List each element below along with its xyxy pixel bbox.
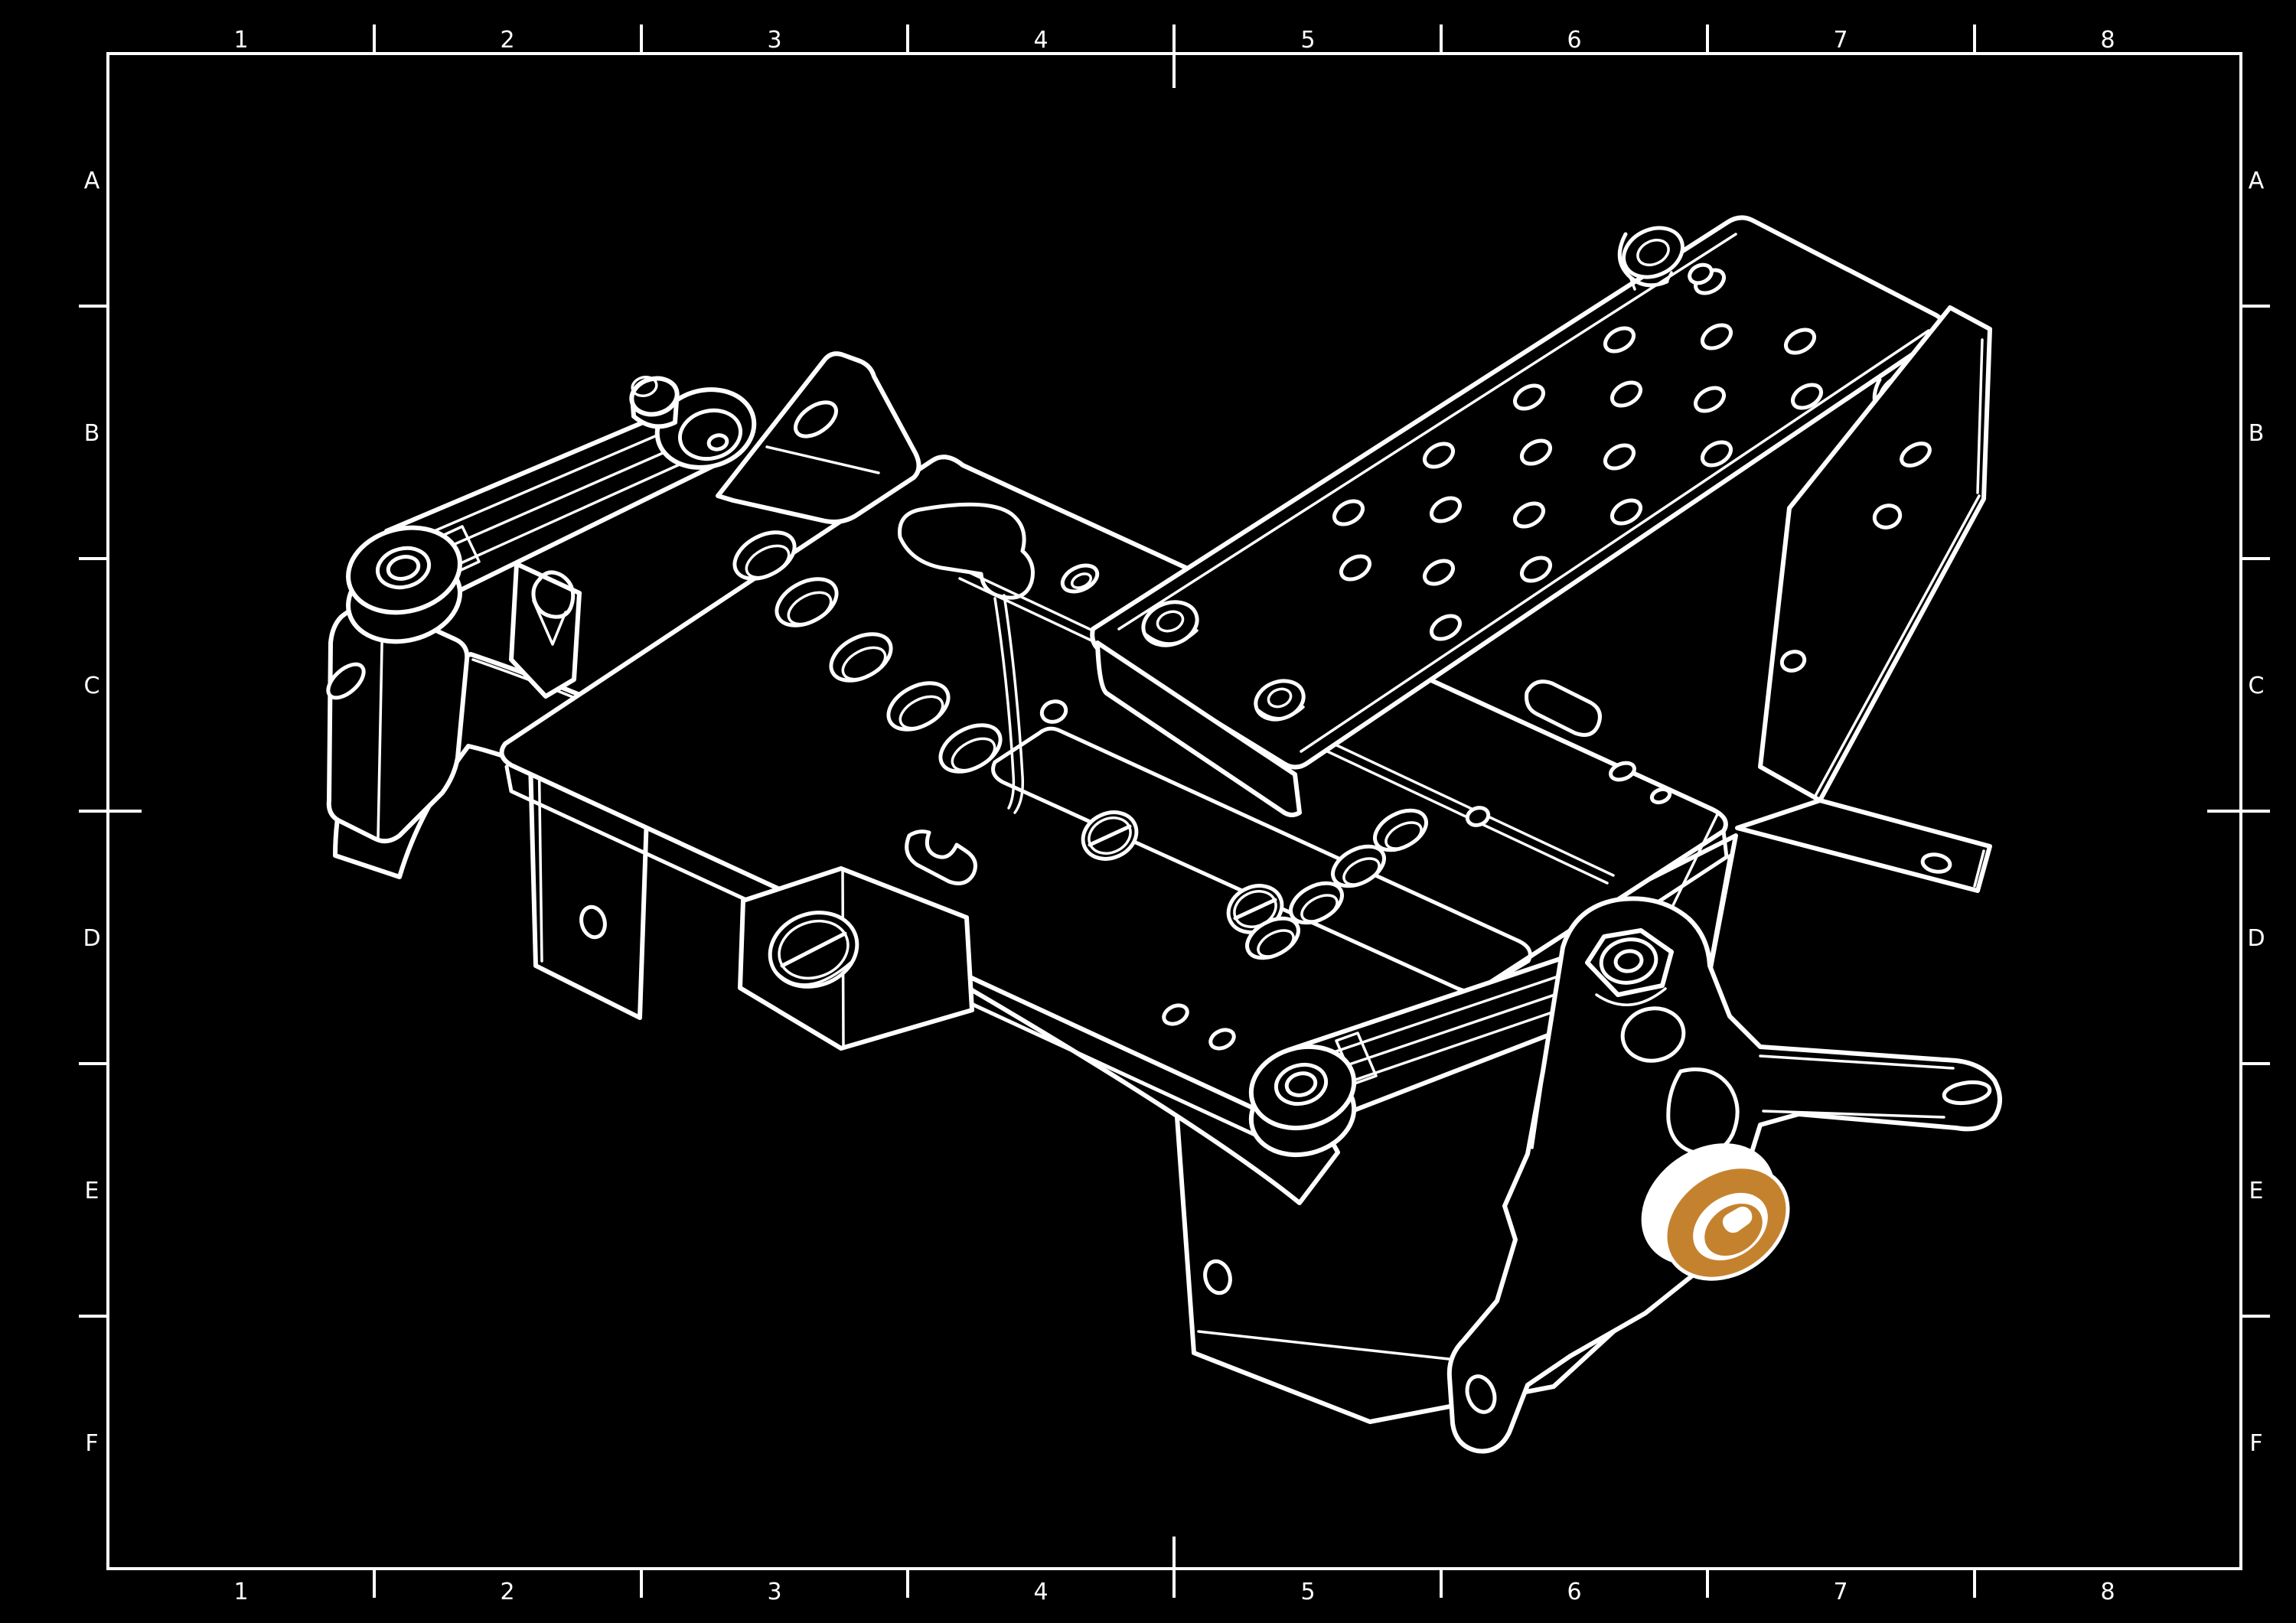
zone-col-label: 5 bbox=[1300, 1579, 1315, 1605]
zone-row-label: B bbox=[2249, 420, 2265, 447]
zone-row-label: D bbox=[83, 925, 100, 952]
zone-row-label: C bbox=[2249, 673, 2265, 699]
zone-row-label: A bbox=[2249, 168, 2265, 194]
zone-col-label: 3 bbox=[767, 1579, 781, 1605]
zone-col-label: 2 bbox=[500, 27, 514, 54]
zone-col-label: 4 bbox=[1033, 27, 1048, 54]
zone-row-label: C bbox=[84, 673, 100, 699]
drawing-sheet: 1 2 3 4 5 6 7 8 1 2 3 4 5 6 7 8 A B C D … bbox=[0, 0, 2296, 1623]
zone-col-label: 8 bbox=[2100, 27, 2115, 54]
zone-row-label: D bbox=[2247, 925, 2265, 952]
shoulder-bolt bbox=[628, 373, 680, 426]
zone-col-label: 2 bbox=[500, 1579, 514, 1605]
zone-col-label: 3 bbox=[767, 27, 781, 54]
zone-col-label: 6 bbox=[1567, 1579, 1581, 1605]
zone-col-label: 8 bbox=[2100, 1579, 2115, 1605]
zone-row-label: B bbox=[84, 420, 100, 447]
zone-row-label: A bbox=[84, 168, 100, 194]
zone-col-label: 4 bbox=[1033, 1579, 1048, 1605]
zone-col-label: 1 bbox=[233, 1579, 248, 1605]
zone-col-label: 6 bbox=[1567, 27, 1581, 54]
teardrop-cutout bbox=[1668, 1070, 1737, 1154]
zone-row-label: F bbox=[85, 1430, 98, 1457]
zone-col-label: 7 bbox=[1833, 1579, 1848, 1605]
zone-col-label: 1 bbox=[233, 27, 248, 54]
zone-col-label: 5 bbox=[1300, 27, 1315, 54]
zone-col-label: 7 bbox=[1833, 27, 1848, 54]
zone-row-label: F bbox=[2249, 1430, 2262, 1457]
zone-row-label: E bbox=[85, 1178, 99, 1204]
zone-row-label: E bbox=[2249, 1178, 2264, 1204]
